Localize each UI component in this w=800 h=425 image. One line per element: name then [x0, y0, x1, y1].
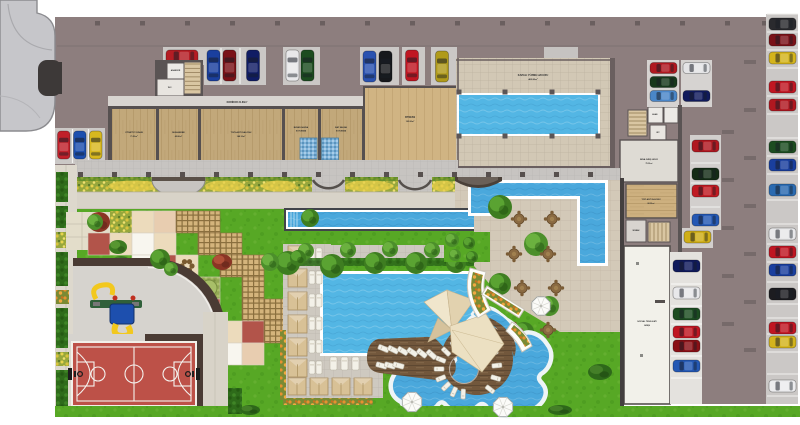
svg-text:SOYUNMA: SOYUNMA — [336, 130, 347, 133]
svg-text:42.80m²: 42.80m² — [175, 135, 183, 138]
svg-text:SOSYAL TESİS KATI: SOSYAL TESİS KATI — [637, 320, 657, 323]
svg-text:TOPLANTI SALONU: TOPLANTI SALONU — [231, 131, 252, 134]
svg-text:465.80m²: 465.80m² — [528, 78, 538, 81]
svg-text:FITNESS: FITNESS — [405, 116, 416, 119]
svg-text:ASAN.: ASAN. — [652, 113, 658, 116]
svg-text:71.50m²: 71.50m² — [130, 135, 138, 138]
svg-text:75.30m²: 75.30m² — [645, 162, 652, 165]
svg-text:BİNA GİRİŞ HOLÜ: BİNA GİRİŞ HOLÜ — [640, 158, 658, 161]
svg-text:YÖNETİCİ ODASI: YÖNETİCİ ODASI — [125, 131, 143, 134]
svg-text:SIĞINAK: SIĞINAK — [632, 229, 640, 232]
svg-text:GİRİŞİ: GİRİŞİ — [644, 324, 650, 327]
svg-text:BAY SAUNA: BAY SAUNA — [335, 126, 347, 129]
svg-text:148.10m²: 148.10m² — [237, 135, 246, 138]
svg-text:BAYAN SAUNA: BAYAN SAUNA — [294, 126, 309, 129]
svg-text:103.80m²: 103.80m² — [406, 120, 415, 123]
svg-text:SOYUNMA: SOYUNMA — [296, 130, 307, 133]
svg-text:KORİDOR 31.80m²: KORİDOR 31.80m² — [227, 100, 248, 104]
svg-text:ASANSÖR: ASANSÖR — [171, 69, 181, 72]
svg-text:TOPLANTI SALONU: TOPLANTI SALONU — [642, 198, 662, 201]
svg-text:82.30m²: 82.30m² — [647, 202, 654, 205]
svg-text:MUHASEBE: MUHASEBE — [172, 131, 185, 134]
svg-text:W.C.: W.C. — [168, 87, 173, 89]
